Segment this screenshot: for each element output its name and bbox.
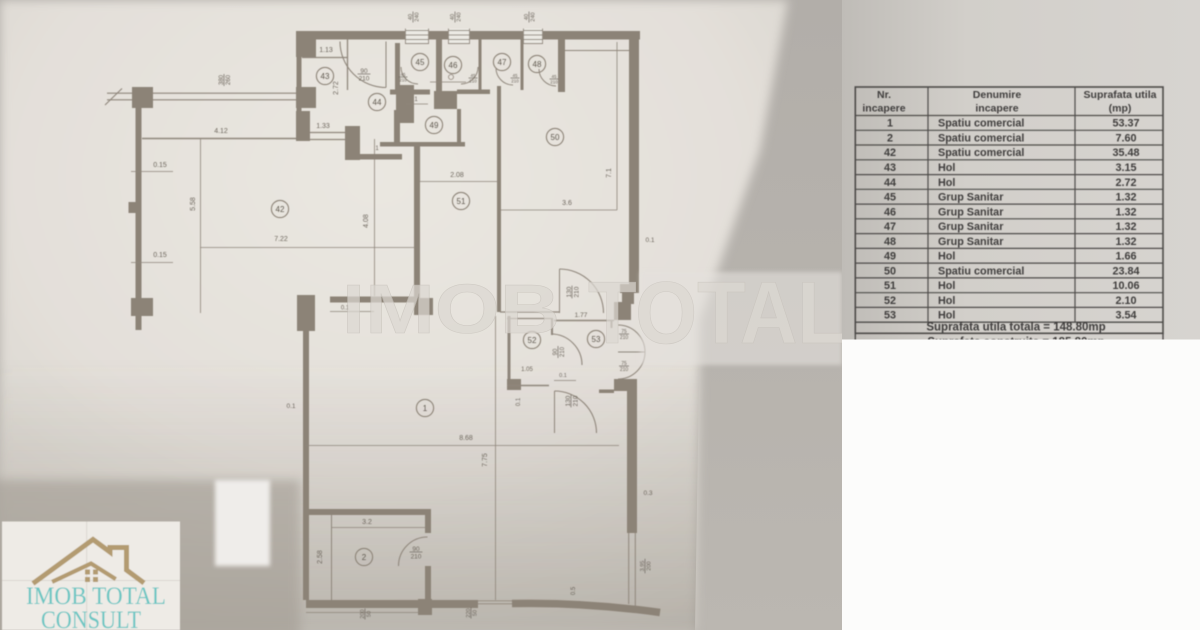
svg-text:210: 210 <box>399 78 407 83</box>
svg-text:210: 210 <box>411 554 422 561</box>
svg-text:Grup Sanitar: Grup Sanitar <box>938 236 1004 248</box>
svg-text:210: 210 <box>550 80 558 85</box>
svg-text:5.58: 5.58 <box>190 197 197 211</box>
svg-text:2.58: 2.58 <box>317 550 324 564</box>
svg-text:0.15: 0.15 <box>153 252 167 259</box>
svg-text:42: 42 <box>884 147 896 159</box>
svg-text:Denumire: Denumire <box>973 89 1022 101</box>
svg-text:3.2: 3.2 <box>362 519 372 526</box>
svg-text:CONSULT: CONSULT <box>41 607 141 630</box>
svg-text:50: 50 <box>551 133 560 142</box>
svg-text:47: 47 <box>498 58 507 67</box>
svg-text:47: 47 <box>884 221 896 233</box>
svg-text:Suprafata utila: Suprafata utila <box>1084 89 1157 101</box>
svg-text:IMOB: IMOB <box>342 270 560 348</box>
svg-text:Grup Sanitar: Grup Sanitar <box>938 206 1004 218</box>
svg-text:200: 200 <box>647 561 653 570</box>
svg-text:1.32: 1.32 <box>1115 236 1136 248</box>
svg-text:44: 44 <box>884 177 896 189</box>
svg-text:240: 240 <box>531 12 537 21</box>
svg-text:1: 1 <box>423 404 428 413</box>
svg-text:210: 210 <box>359 76 370 83</box>
svg-text:Hol: Hol <box>938 295 955 307</box>
svg-text:Hol: Hol <box>938 177 955 189</box>
svg-text:49: 49 <box>884 251 896 263</box>
svg-text:1.32: 1.32 <box>1115 221 1136 233</box>
svg-text:210: 210 <box>560 346 566 357</box>
svg-text:0.1: 0.1 <box>286 403 295 410</box>
svg-text:0.1: 0.1 <box>516 397 522 406</box>
svg-text:45: 45 <box>551 74 557 79</box>
svg-text:2: 2 <box>362 553 367 562</box>
svg-text:210: 210 <box>573 395 580 406</box>
svg-text:45: 45 <box>512 73 518 78</box>
svg-text:42: 42 <box>276 205 285 214</box>
svg-text:23.84: 23.84 <box>1112 265 1139 277</box>
svg-text:Hol: Hol <box>938 280 955 292</box>
svg-text:1.33: 1.33 <box>316 123 330 130</box>
svg-text:3.54: 3.54 <box>1115 310 1136 322</box>
svg-text:260: 260 <box>226 74 232 85</box>
svg-text:53: 53 <box>884 310 896 322</box>
svg-text:50: 50 <box>473 610 479 616</box>
svg-text:0.3: 0.3 <box>643 490 652 497</box>
svg-text:Hol: Hol <box>938 162 955 174</box>
svg-text:8.68: 8.68 <box>459 435 473 442</box>
svg-text:52: 52 <box>884 295 896 307</box>
svg-text:53.37: 53.37 <box>1112 118 1139 130</box>
svg-text:1.66: 1.66 <box>1115 251 1136 263</box>
svg-text:incapere: incapere <box>975 103 1018 115</box>
svg-text:51: 51 <box>884 280 896 292</box>
svg-text:Grup Sanitar: Grup Sanitar <box>938 221 1004 233</box>
svg-text:Hol: Hol <box>938 251 955 263</box>
svg-text:46: 46 <box>884 206 896 218</box>
svg-text:7.60: 7.60 <box>1115 133 1136 145</box>
svg-text:3.15: 3.15 <box>1115 162 1136 174</box>
svg-text:49: 49 <box>430 121 439 130</box>
svg-text:210: 210 <box>469 79 477 84</box>
svg-text:4.08: 4.08 <box>363 214 370 228</box>
svg-text:Grup Sanitar: Grup Sanitar <box>938 192 1004 204</box>
svg-text:210: 210 <box>620 367 629 373</box>
svg-text:44: 44 <box>373 98 382 107</box>
svg-text:1: 1 <box>887 118 893 130</box>
svg-text:35.48: 35.48 <box>1112 147 1139 159</box>
svg-text:(mp): (mp) <box>1109 103 1132 115</box>
svg-text:210: 210 <box>574 286 581 297</box>
svg-text:7.22: 7.22 <box>274 236 288 243</box>
svg-text:50: 50 <box>367 611 373 617</box>
svg-text:7.75: 7.75 <box>482 453 489 467</box>
svg-text:Hol: Hol <box>938 310 955 322</box>
svg-text:incapere: incapere <box>862 103 905 115</box>
svg-text:2.72: 2.72 <box>333 81 340 95</box>
svg-text:0.1: 0.1 <box>559 373 567 379</box>
svg-text:2: 2 <box>887 133 893 145</box>
svg-text:Spatiu comercial: Spatiu comercial <box>938 118 1024 130</box>
svg-text:46: 46 <box>449 61 458 70</box>
svg-text:1.13: 1.13 <box>319 47 333 54</box>
svg-text:TOTAL: TOTAL <box>588 263 846 362</box>
svg-text:51: 51 <box>457 197 466 206</box>
svg-text:Spatiu comercial: Spatiu comercial <box>938 147 1024 159</box>
svg-text:2.72: 2.72 <box>1115 177 1136 189</box>
svg-text:43: 43 <box>321 72 330 81</box>
svg-text:Spatiu comercial: Spatiu comercial <box>938 265 1024 277</box>
svg-text:2.08: 2.08 <box>450 172 464 179</box>
svg-text:48: 48 <box>533 60 542 69</box>
svg-text:240: 240 <box>457 12 463 21</box>
svg-text:4.12: 4.12 <box>214 128 228 135</box>
svg-text:1.77: 1.77 <box>575 312 588 319</box>
svg-text:2.10: 2.10 <box>1115 295 1136 307</box>
svg-text:45: 45 <box>416 58 425 67</box>
svg-text:0.5: 0.5 <box>571 586 577 595</box>
svg-text:210: 210 <box>511 79 519 84</box>
svg-text:45: 45 <box>884 192 896 204</box>
svg-text:1.32: 1.32 <box>1115 192 1136 204</box>
svg-text:45: 45 <box>470 73 476 78</box>
svg-text:240: 240 <box>415 12 421 21</box>
svg-text:Nr.: Nr. <box>877 89 891 101</box>
svg-text:Suprafata utila totala = 148.8: Suprafata utila totala = 148.80mp <box>926 322 1105 334</box>
svg-text:0.15: 0.15 <box>153 162 167 169</box>
svg-text:3.6: 3.6 <box>562 200 572 207</box>
svg-text:1.32: 1.32 <box>1115 206 1136 218</box>
svg-text:0.1: 0.1 <box>645 237 654 244</box>
svg-text:Spatiu comercial: Spatiu comercial <box>938 133 1024 145</box>
svg-text:45: 45 <box>400 72 406 77</box>
svg-text:43: 43 <box>884 162 896 174</box>
svg-text:1.05: 1.05 <box>521 367 533 373</box>
svg-text:10.06: 10.06 <box>1112 280 1139 292</box>
svg-text:7.1: 7.1 <box>606 168 613 178</box>
svg-text:48: 48 <box>884 236 896 248</box>
svg-text:IMOB TOTAL: IMOB TOTAL <box>26 583 166 610</box>
svg-text:50: 50 <box>884 265 896 277</box>
